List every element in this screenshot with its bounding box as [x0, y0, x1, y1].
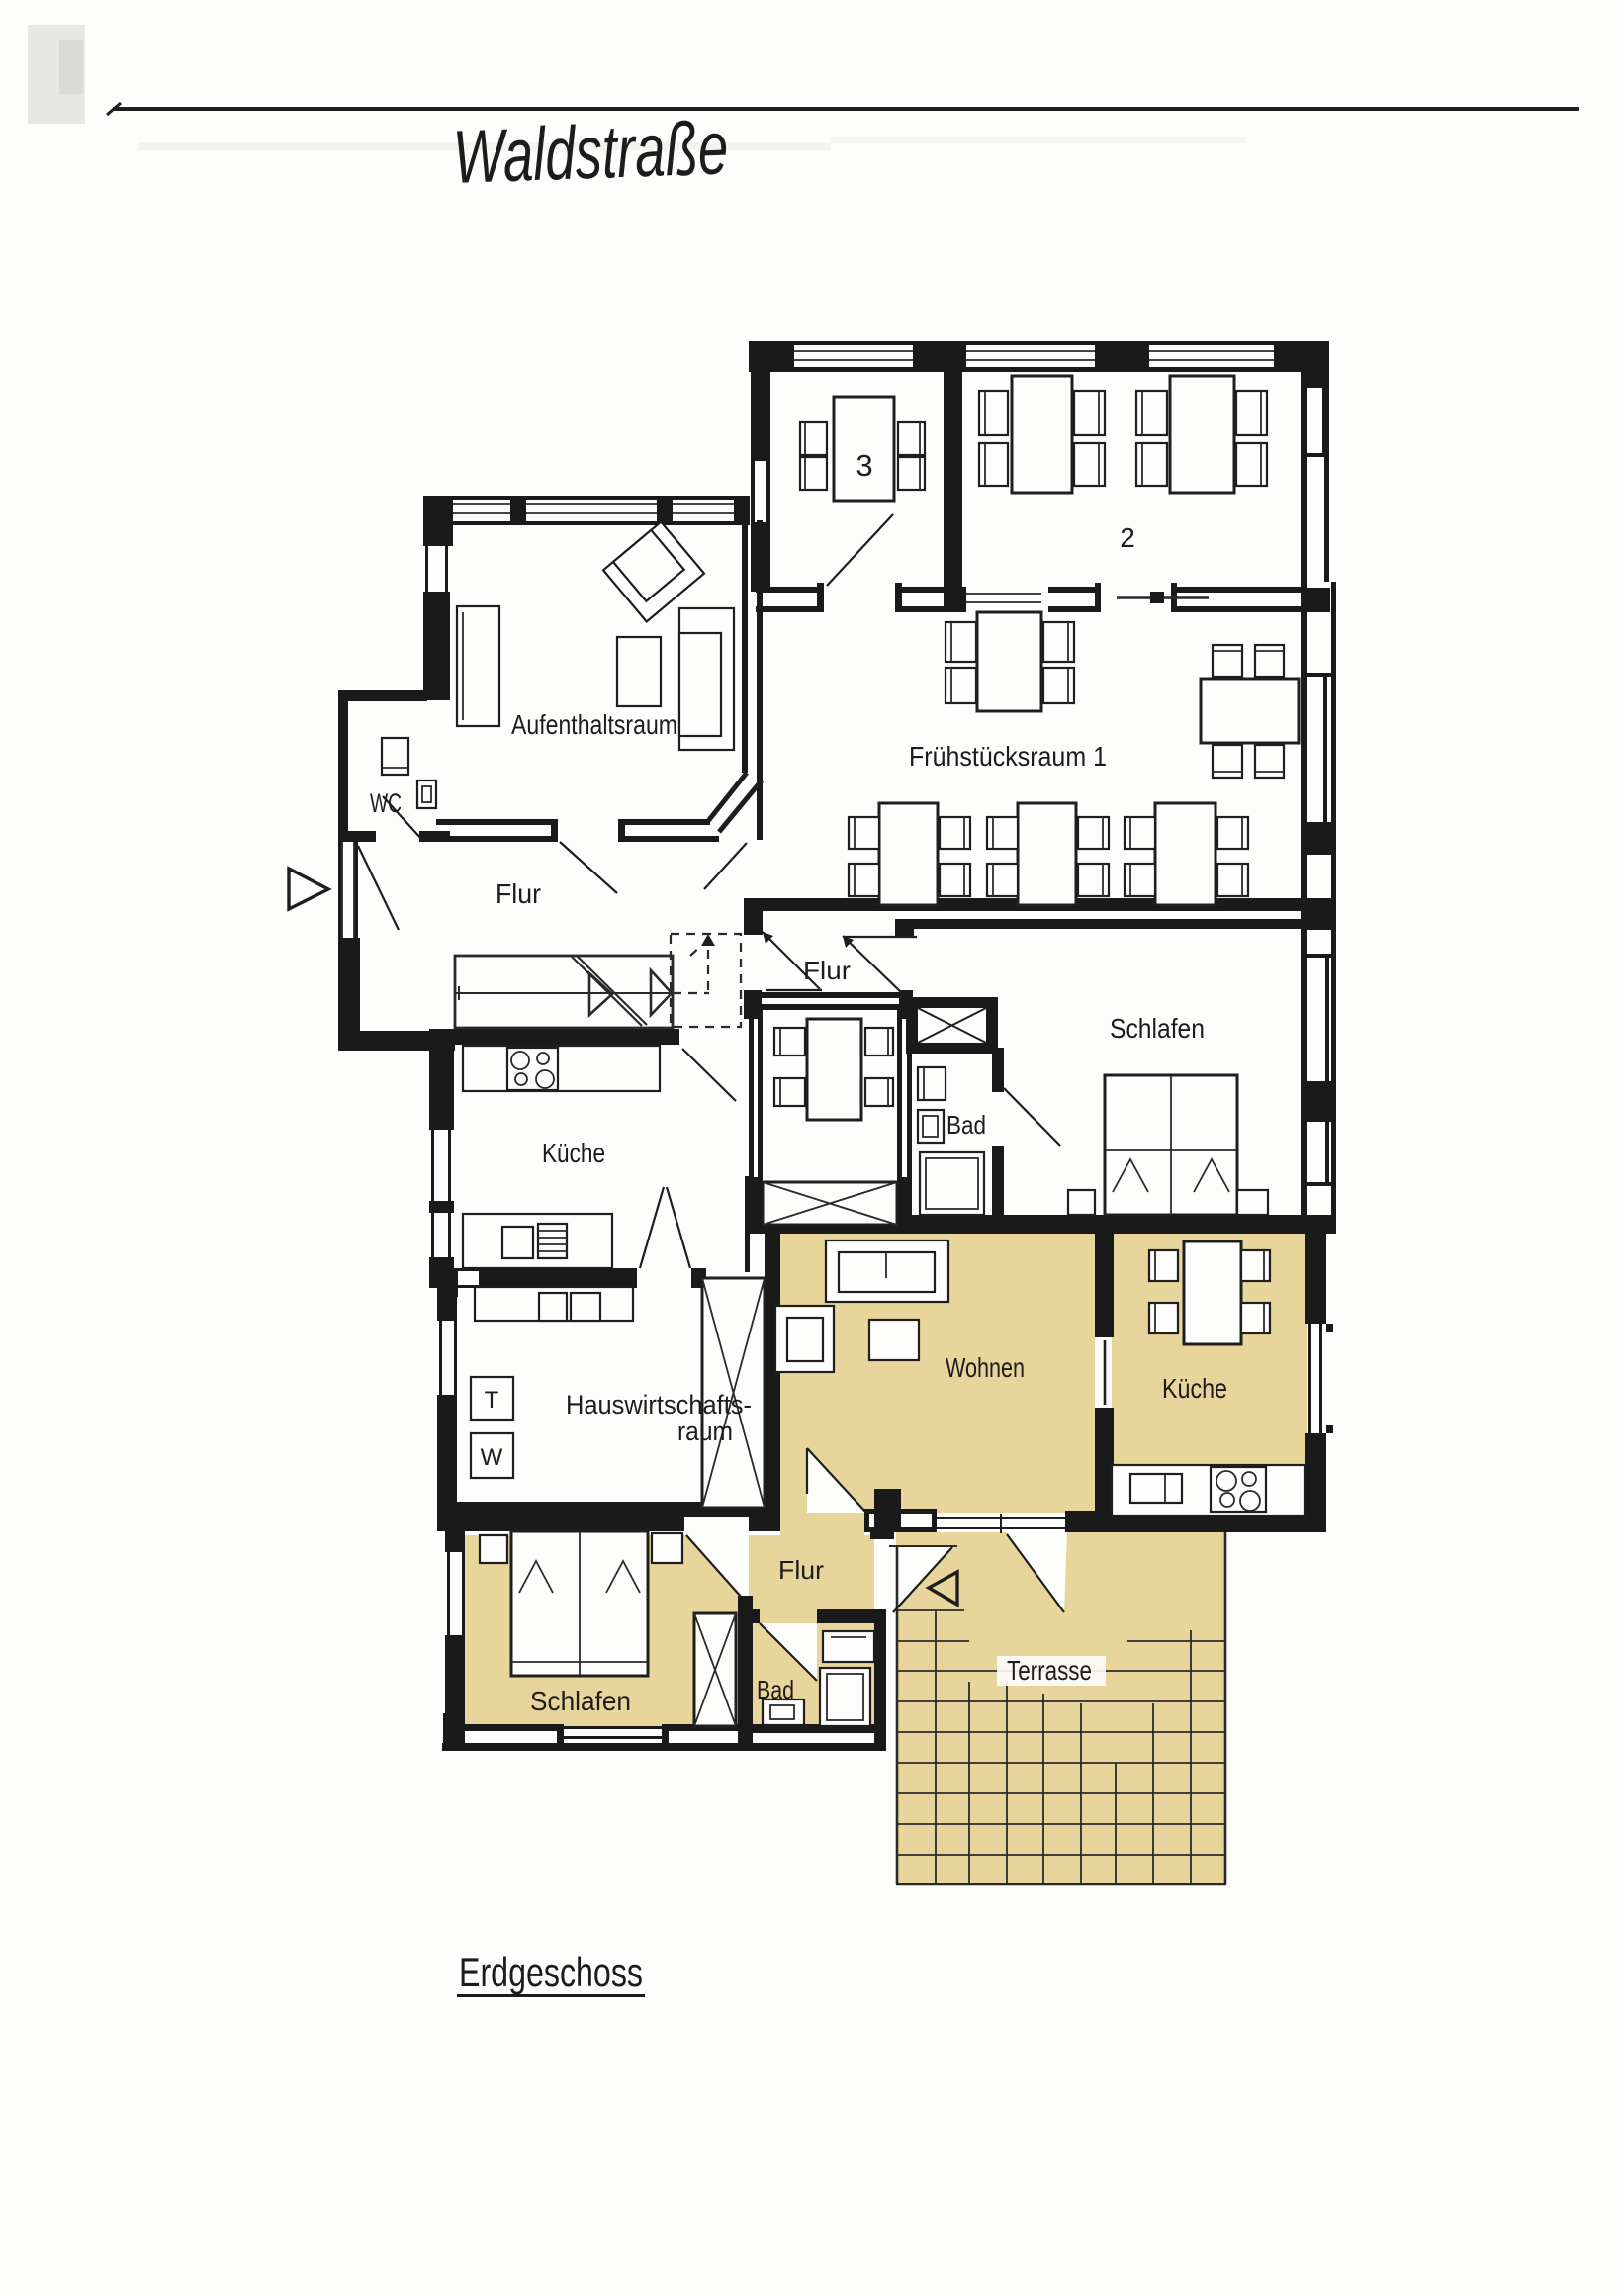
svg-text:raum: raum: [677, 1417, 733, 1446]
svg-text:Frühstücksraum 1: Frühstücksraum 1: [909, 741, 1107, 772]
svg-text:WC: WC: [370, 788, 402, 818]
svg-text:Terrasse: Terrasse: [1007, 1655, 1092, 1686]
svg-text:Küche: Küche: [1162, 1373, 1227, 1404]
svg-text:Flur: Flur: [778, 1555, 824, 1585]
svg-text:Schlafen: Schlafen: [530, 1686, 631, 1716]
svg-text:Flur: Flur: [496, 878, 541, 909]
svg-text:Küche: Küche: [542, 1138, 605, 1168]
svg-text:Wohnen: Wohnen: [946, 1352, 1025, 1383]
svg-text:Erdgeschoss: Erdgeschoss: [459, 1949, 643, 1995]
svg-text:T: T: [485, 1387, 499, 1414]
svg-text:Bad: Bad: [757, 1675, 794, 1704]
svg-text:Hauswirtschafts-: Hauswirtschafts-: [566, 1390, 752, 1420]
svg-text:Waldstraße: Waldstraße: [452, 106, 730, 200]
svg-text:Bad: Bad: [946, 1110, 986, 1140]
svg-text:2: 2: [1120, 522, 1135, 553]
svg-text:W: W: [481, 1444, 503, 1471]
svg-text:Aufenthaltsraum: Aufenthaltsraum: [511, 709, 677, 740]
svg-text:3: 3: [856, 448, 872, 483]
svg-text:Schlafen: Schlafen: [1110, 1013, 1205, 1044]
svg-text:Flur: Flur: [803, 956, 851, 985]
